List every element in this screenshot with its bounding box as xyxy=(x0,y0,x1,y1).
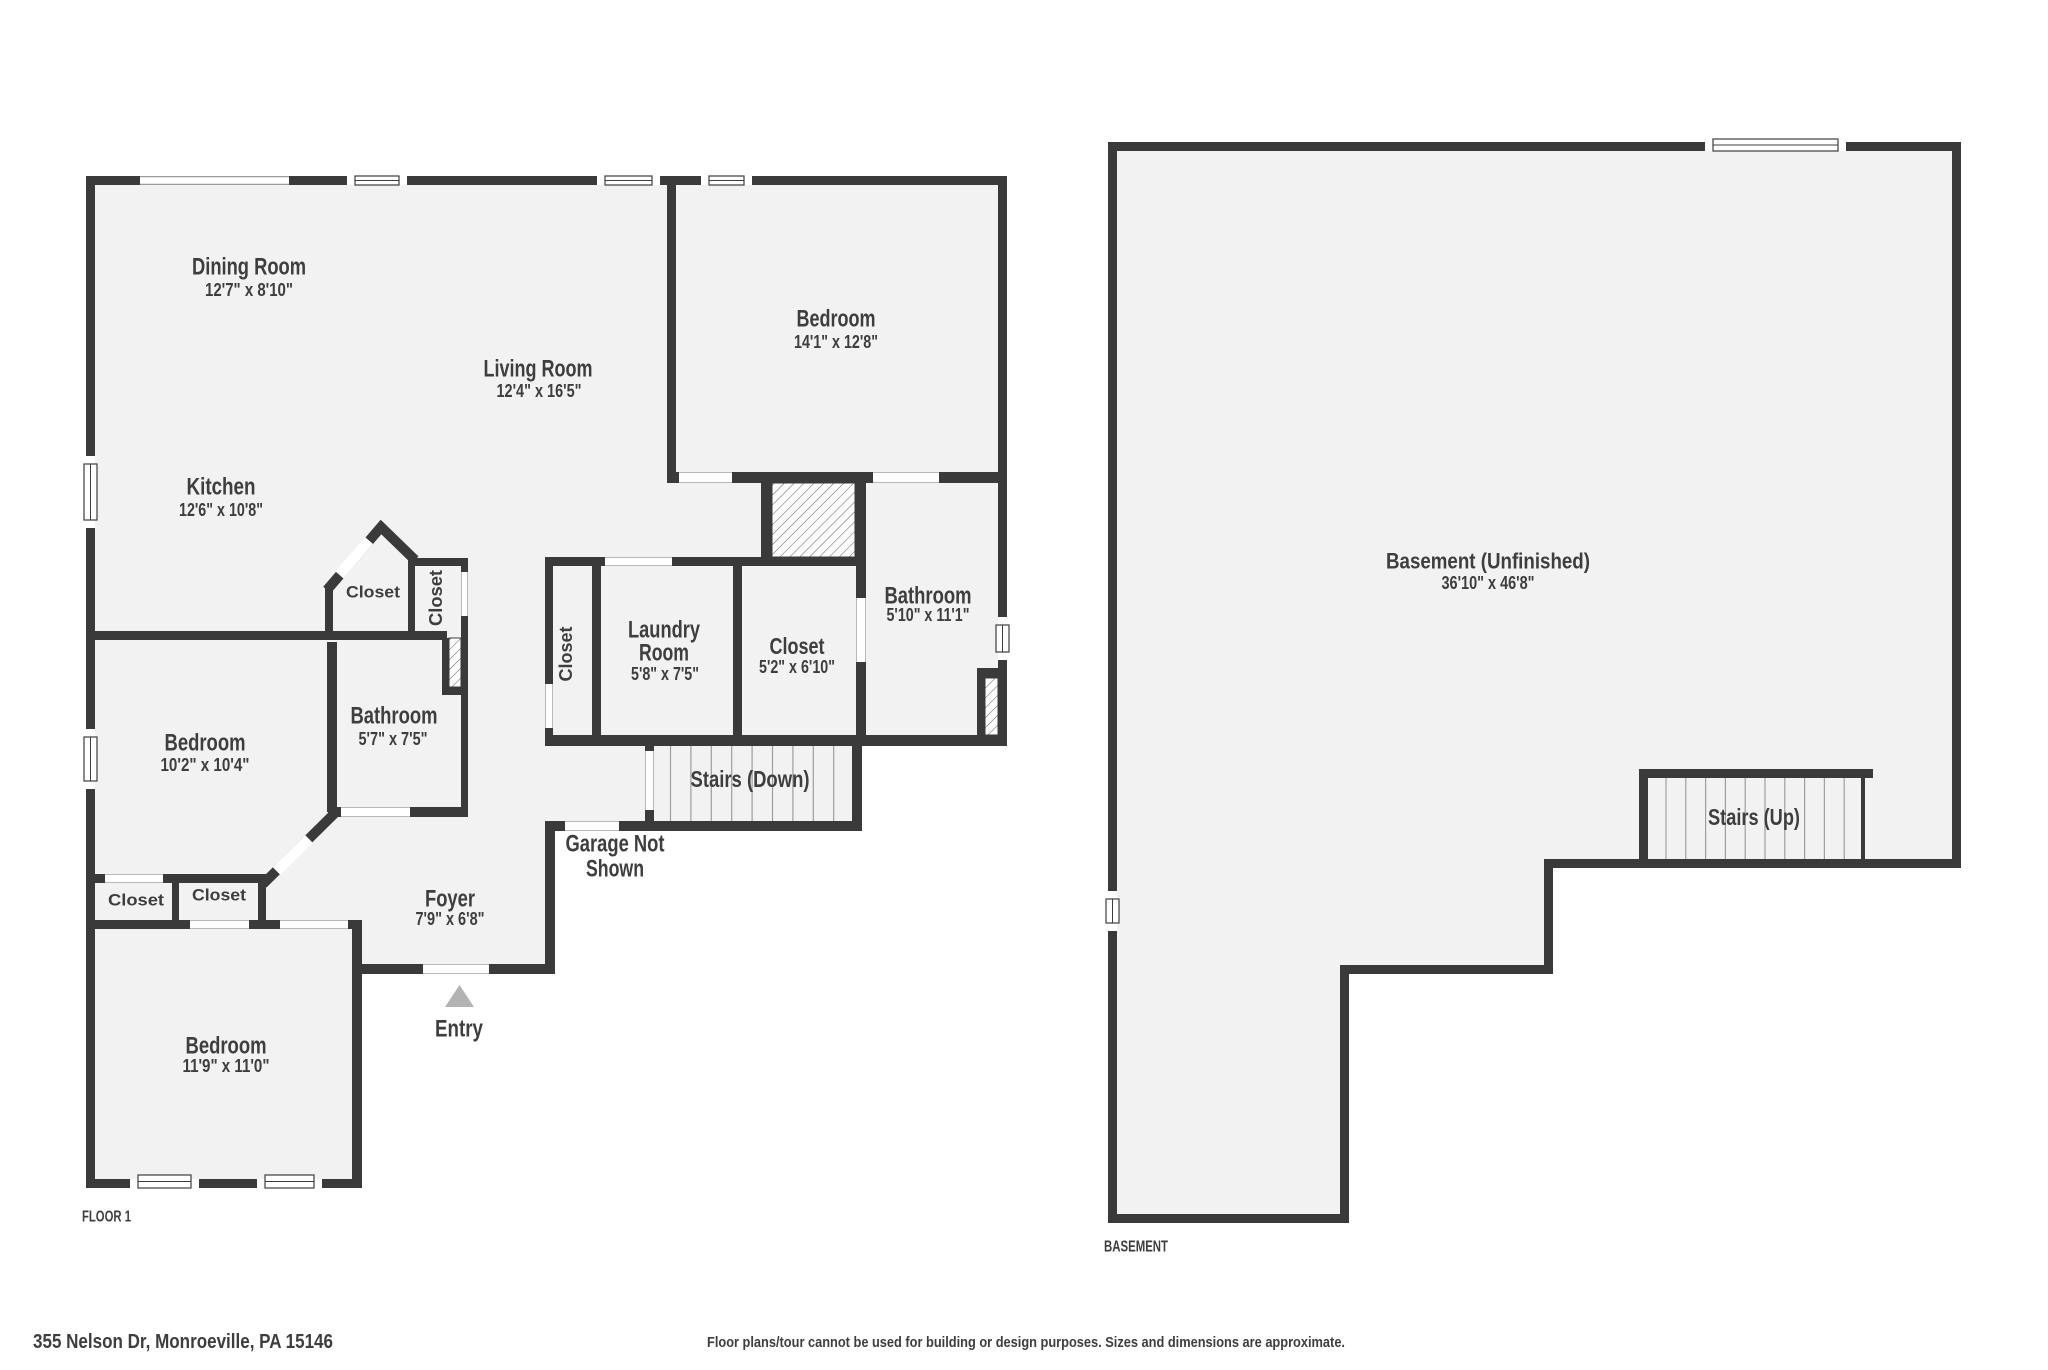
svg-text:5'10" x 11'1": 5'10" x 11'1" xyxy=(887,605,970,625)
svg-text:Floor plans/tour cannot be use: Floor plans/tour cannot be used for buil… xyxy=(707,1335,1345,1351)
svg-text:Closet: Closet xyxy=(770,633,825,659)
svg-text:Entry: Entry xyxy=(435,1016,484,1043)
svg-text:Closet: Closet xyxy=(192,886,246,905)
svg-text:Shown: Shown xyxy=(586,856,644,883)
svg-text:7'9" x 6'8": 7'9" x 6'8" xyxy=(416,909,485,929)
svg-text:Closet: Closet xyxy=(346,583,400,602)
svg-text:12'4" x 16'5": 12'4" x 16'5" xyxy=(497,381,582,401)
svg-text:Room: Room xyxy=(639,640,689,667)
svg-text:Garage Not: Garage Not xyxy=(566,831,665,858)
svg-text:Stairs (Down): Stairs (Down) xyxy=(691,766,810,792)
svg-text:12'6" x 10'8": 12'6" x 10'8" xyxy=(179,500,263,520)
svg-text:355 Nelson Dr, Monroeville, PA: 355 Nelson Dr, Monroeville, PA 15146 xyxy=(33,1331,333,1353)
svg-text:Bathroom: Bathroom xyxy=(351,703,438,730)
svg-text:Closet: Closet xyxy=(426,570,446,626)
svg-text:Bedroom: Bedroom xyxy=(165,730,246,757)
svg-text:Basement (Unfinished): Basement (Unfinished) xyxy=(1386,549,1590,574)
svg-text:Living Room: Living Room xyxy=(484,356,593,383)
svg-text:Stairs (Up): Stairs (Up) xyxy=(1708,804,1800,830)
svg-text:Closet: Closet xyxy=(556,626,576,681)
svg-text:Closet: Closet xyxy=(108,891,164,910)
svg-text:Kitchen: Kitchen xyxy=(187,474,256,501)
svg-text:BASEMENT: BASEMENT xyxy=(1104,1239,1168,1256)
svg-text:12'7" x 8'10": 12'7" x 8'10" xyxy=(205,280,293,300)
svg-text:Bedroom: Bedroom xyxy=(797,306,876,333)
svg-text:10'2" x 10'4": 10'2" x 10'4" xyxy=(161,755,250,775)
svg-text:36'10" x 46'8": 36'10" x 46'8" xyxy=(1442,573,1535,593)
svg-text:FLOOR 1: FLOOR 1 xyxy=(82,1209,131,1226)
svg-text:5'8" x 7'5": 5'8" x 7'5" xyxy=(631,664,699,684)
svg-text:14'1" x 12'8": 14'1" x 12'8" xyxy=(794,332,878,352)
svg-text:5'2" x 6'10": 5'2" x 6'10" xyxy=(759,657,835,677)
svg-text:Dining Room: Dining Room xyxy=(192,254,306,281)
svg-text:5'7" x 7'5": 5'7" x 7'5" xyxy=(359,729,428,749)
svg-text:11'9" x 11'0": 11'9" x 11'0" xyxy=(183,1056,270,1076)
